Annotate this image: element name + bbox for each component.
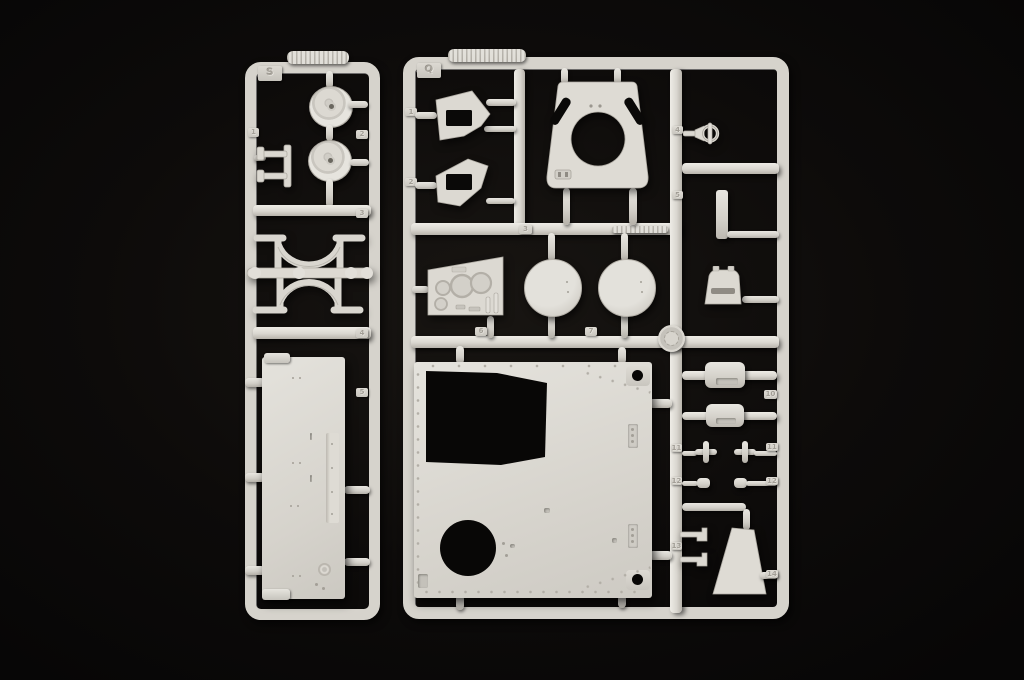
gate-number: 7 — [589, 327, 594, 335]
small-fitting — [612, 538, 617, 543]
gate-number: 13 — [672, 542, 682, 550]
sprue-gate — [649, 399, 672, 408]
panel-round-hole — [440, 520, 496, 576]
angled-plate-part — [434, 158, 490, 210]
sprue-gate — [344, 558, 370, 566]
bracket-part — [256, 143, 294, 189]
grille-hole — [631, 440, 634, 443]
rivet — [299, 377, 301, 379]
sprue-gate — [649, 551, 672, 560]
turret-roof-part — [543, 78, 653, 192]
sprue-s-molded-text-tag — [287, 51, 349, 64]
pin-mark — [566, 281, 568, 283]
runner-bar — [253, 327, 371, 339]
hinge-detail — [264, 353, 290, 363]
hull-roof-panel-part — [414, 362, 652, 598]
hatch-disc-part — [524, 259, 582, 317]
rivet — [297, 505, 299, 507]
box-lip — [716, 418, 736, 424]
gate-number-tab: 3 — [519, 225, 532, 234]
hatch-disc-part — [598, 259, 656, 317]
slot-detail — [310, 433, 312, 440]
sprue-q-letter: Q — [425, 64, 434, 75]
gate-number: 4 — [675, 126, 680, 134]
sprue-gate — [682, 481, 698, 486]
sprue-gate — [727, 231, 779, 238]
sprue-gate — [326, 125, 333, 141]
road-wheel-part — [308, 140, 352, 182]
rivet — [315, 583, 318, 586]
gate-number: 3 — [523, 225, 528, 233]
road-wheel-part — [309, 86, 353, 128]
small-fitting — [418, 574, 428, 588]
pin-mark — [567, 291, 569, 293]
grille-detail — [628, 524, 638, 548]
gate-number-tab: 14 — [766, 570, 778, 578]
sprue-gate — [563, 188, 570, 225]
grille-hole — [631, 534, 634, 537]
slot-detail — [310, 475, 312, 482]
rivet — [299, 462, 301, 464]
gate-number: 5 — [675, 191, 680, 199]
round-boss-detail — [318, 563, 331, 576]
sprue-gate — [629, 188, 637, 225]
rivet — [322, 587, 325, 590]
stowage-box-part — [701, 266, 747, 308]
sprue-q-letter-plate: Q — [417, 63, 441, 78]
gate-number-tab: 5 — [672, 191, 683, 199]
gate-number: 12 — [767, 477, 777, 485]
gate-number: 4 — [360, 329, 365, 337]
sprue-s-letter: S — [266, 67, 273, 78]
grille-hole — [631, 528, 634, 531]
recycling-mark-medallion — [658, 325, 685, 352]
pin-mark — [502, 542, 505, 545]
gate-number-tab: 12 — [766, 477, 778, 485]
sprue-gate — [326, 179, 333, 207]
boss-hole — [632, 574, 643, 585]
gate-number-tab: 13 — [671, 542, 682, 550]
raised-strip-detail — [326, 433, 339, 523]
gate-number-tab: 3 — [356, 209, 368, 218]
gate-number: 5 — [360, 388, 365, 396]
medallion-ring — [664, 331, 679, 346]
sprue-s-letter-plate: S — [258, 66, 282, 81]
gate-number: 2 — [360, 130, 365, 138]
grille-hole — [631, 428, 634, 431]
pin-mark — [505, 554, 508, 557]
sprue-gate — [548, 233, 555, 261]
gate-number: 14 — [767, 570, 777, 578]
angled-plate-part — [434, 90, 492, 144]
sprue-gate — [348, 101, 368, 108]
gate-number: 12 — [672, 477, 682, 485]
small-fitting — [510, 544, 515, 548]
gate-number: 11 — [767, 443, 777, 451]
gate-number-tab: 7 — [585, 327, 597, 336]
sprue-gate — [486, 198, 515, 204]
sprue-gate — [344, 486, 370, 494]
grille-hole — [631, 540, 634, 543]
trapezoid-plate-part — [708, 526, 770, 596]
gate-number-tab: 2 — [356, 130, 368, 139]
hull-side-panel-part — [262, 357, 345, 599]
rivet — [292, 575, 294, 577]
gate-number-tab: 1 — [248, 128, 259, 137]
box-lip — [716, 378, 738, 385]
rivet — [331, 467, 333, 469]
gate-number-tab: 11 — [766, 443, 778, 451]
runner-bar — [682, 163, 779, 174]
gate-number: 1 — [251, 128, 256, 136]
rivet — [292, 462, 294, 464]
corner-boss — [626, 366, 650, 386]
rivet — [292, 377, 294, 379]
rounded-box-part — [706, 404, 744, 427]
cross-fitting-part — [703, 441, 709, 463]
gate-number-tab: 11 — [671, 444, 682, 452]
rivet-line — [420, 364, 620, 368]
gate-number: 6 — [479, 327, 484, 335]
sprue-gate — [682, 503, 746, 511]
gate-number: 1 — [409, 108, 414, 116]
cross-fitting-part — [742, 441, 748, 463]
hinge-detail — [262, 589, 290, 600]
rivet — [290, 505, 292, 507]
rivet — [331, 491, 333, 493]
gate-number-tab: 4 — [672, 126, 683, 134]
small-cylinder-part — [697, 478, 710, 488]
rounded-box-part — [705, 362, 745, 388]
grille-hole — [631, 434, 634, 437]
runner-bar — [514, 69, 525, 229]
runner-bar — [253, 205, 371, 216]
grille-detail — [628, 424, 638, 448]
runner-bar — [411, 336, 779, 348]
sprue-gate — [350, 159, 369, 166]
gate-number-tab: 10 — [764, 390, 777, 399]
flat-bar-part — [716, 190, 728, 239]
photo-of-model-kit-sprues: S 3 — [0, 0, 1024, 680]
panel-cutout — [426, 370, 568, 478]
sprue-gate — [621, 233, 628, 261]
sprue-gate — [754, 451, 777, 456]
rivet — [299, 575, 301, 577]
wheel-hub-hole — [328, 158, 333, 163]
rivet-line — [416, 368, 420, 592]
gate-number-tab: 4 — [356, 329, 368, 338]
gate-number: 3 — [360, 209, 365, 217]
sprue-gate — [487, 316, 494, 338]
small-fitting — [544, 508, 550, 513]
instrument-panel-part — [426, 255, 506, 319]
pin-mark — [641, 291, 643, 293]
arched-support-part — [247, 226, 373, 318]
gate-number: 10 — [766, 390, 776, 398]
rivet — [331, 513, 333, 515]
gate-number: 11 — [672, 444, 682, 452]
sprue-q-molded-text-tag — [448, 49, 526, 62]
runner-embossed-text — [612, 226, 668, 233]
rivet-line — [420, 590, 646, 594]
wheel-hub-hole — [329, 104, 334, 109]
tow-clevis-part — [683, 122, 721, 146]
gate-number-tab: 5 — [356, 388, 368, 397]
gate-number: 2 — [409, 178, 414, 186]
gate-number-tab: 12 — [671, 477, 682, 485]
sprue-gate — [742, 296, 779, 303]
rivet — [331, 443, 333, 445]
gate-number-tab: 6 — [475, 327, 487, 336]
pin-mark — [640, 281, 642, 283]
boss-hole — [632, 370, 643, 381]
